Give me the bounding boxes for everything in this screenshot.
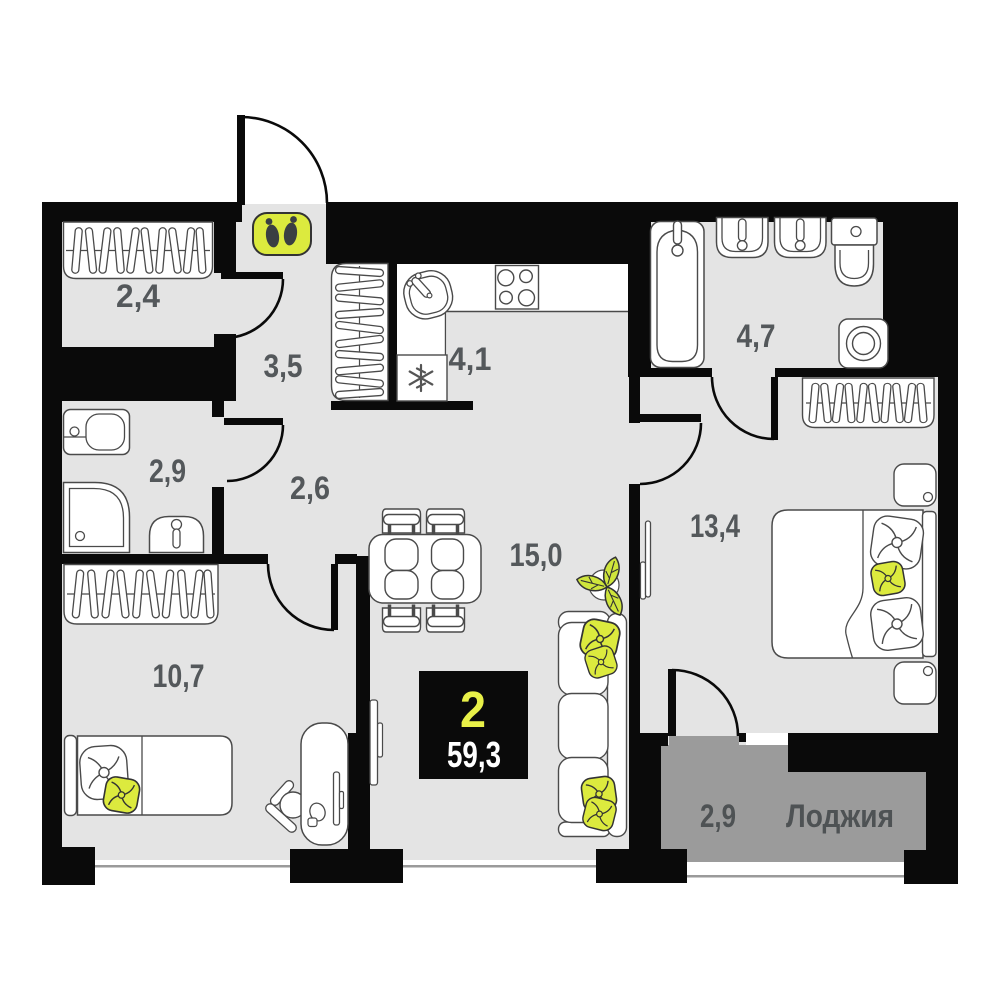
svg-text:59,3: 59,3 xyxy=(447,734,501,775)
svg-text:2,9: 2,9 xyxy=(700,798,736,834)
svg-text:2: 2 xyxy=(460,681,486,738)
svg-text:2,4: 2,4 xyxy=(116,278,160,314)
svg-text:2,6: 2,6 xyxy=(290,470,330,506)
svg-text:13,4: 13,4 xyxy=(690,508,740,544)
svg-text:2,9: 2,9 xyxy=(149,453,186,489)
svg-text:15,0: 15,0 xyxy=(510,537,563,573)
svg-text:10,7: 10,7 xyxy=(153,658,205,694)
svg-text:Лоджия: Лоджия xyxy=(786,798,894,834)
svg-text:4,7: 4,7 xyxy=(737,318,776,354)
svg-text:4,1: 4,1 xyxy=(449,341,492,377)
svg-text:3,5: 3,5 xyxy=(264,348,303,384)
